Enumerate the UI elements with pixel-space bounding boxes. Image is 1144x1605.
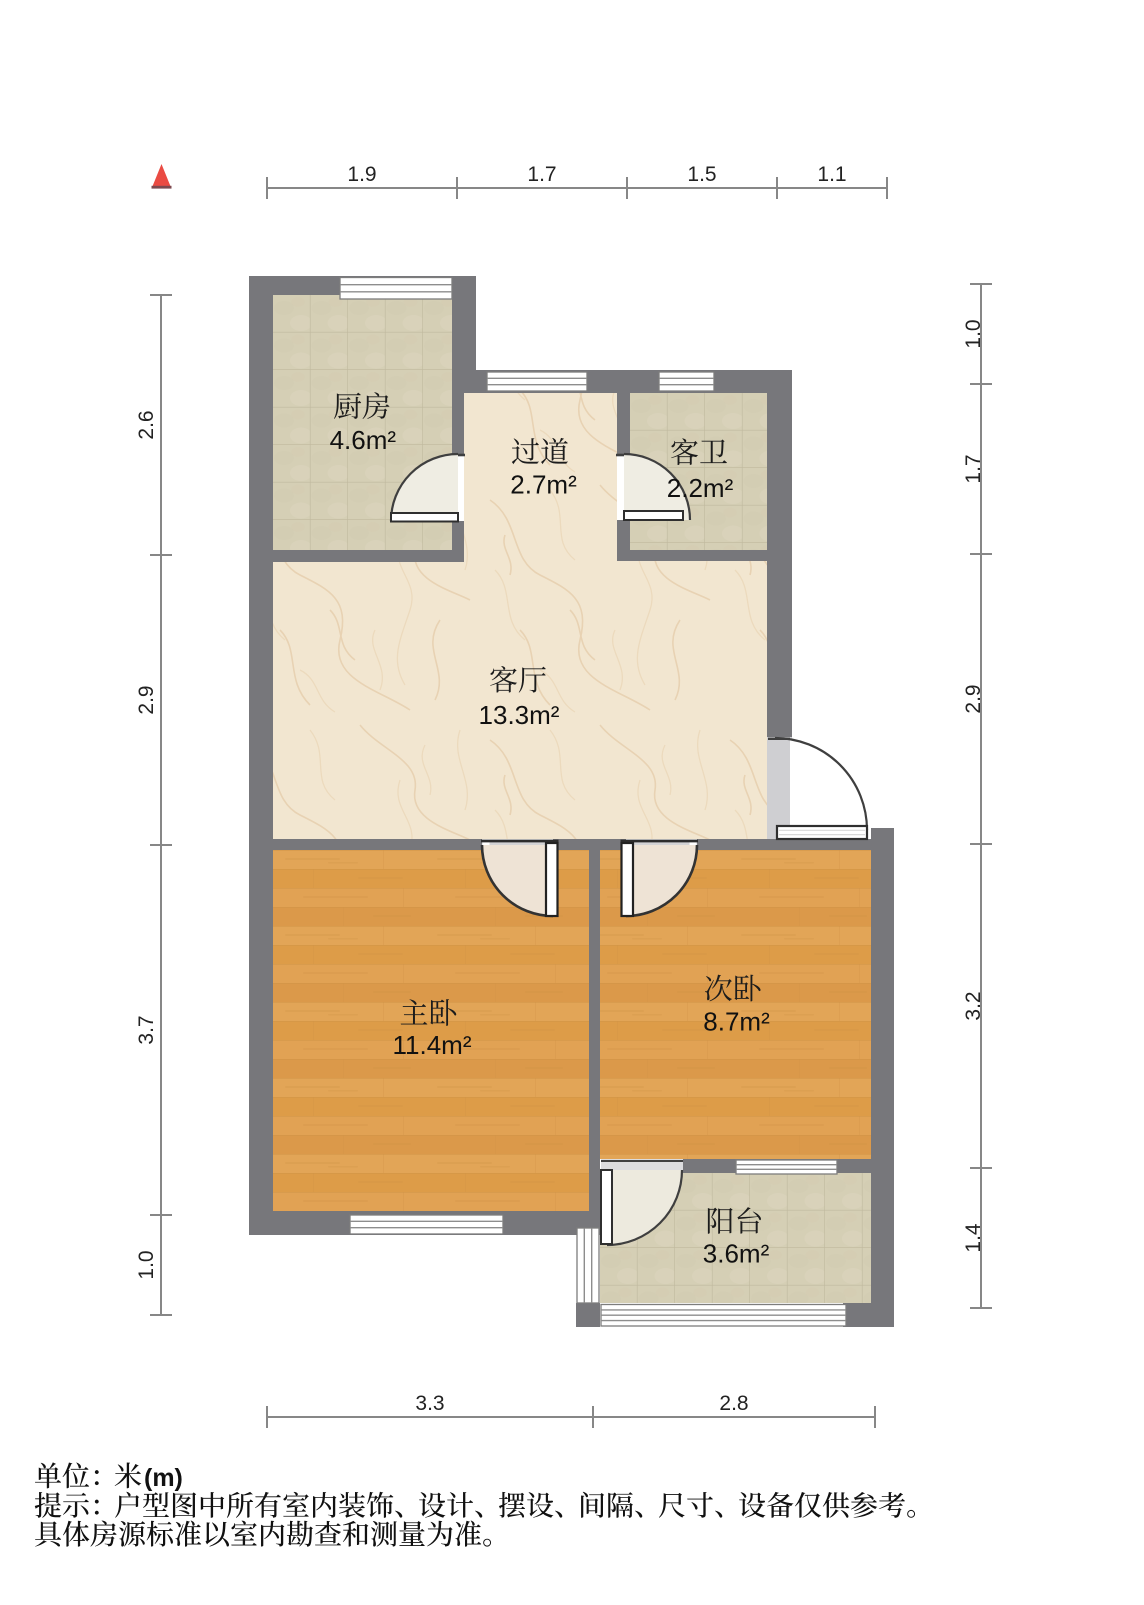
svg-text:1.1: 1.1 [817, 163, 846, 186]
svg-text:1.7: 1.7 [527, 163, 556, 186]
svg-text:1.0: 1.0 [135, 1250, 158, 1279]
svg-text:1.9: 1.9 [347, 163, 376, 186]
svg-text:2.2m²: 2.2m² [667, 473, 734, 503]
svg-text:2.9: 2.9 [962, 684, 985, 713]
svg-text:2.7m²: 2.7m² [510, 470, 577, 500]
svg-text:3.7: 3.7 [135, 1015, 158, 1044]
svg-text:13.3m²: 13.3m² [479, 700, 560, 730]
svg-text:11.4m²: 11.4m² [393, 1030, 472, 1060]
svg-text:2.9: 2.9 [135, 685, 158, 714]
svg-text:3.3: 3.3 [415, 1392, 444, 1415]
svg-text:3.6m²: 3.6m² [703, 1239, 770, 1269]
svg-text:1.4: 1.4 [962, 1223, 985, 1253]
svg-text:4.6m²: 4.6m² [330, 425, 397, 455]
svg-text:1.0: 1.0 [962, 319, 985, 348]
svg-text:1.5: 1.5 [687, 163, 716, 186]
svg-text:2.6: 2.6 [135, 410, 158, 439]
svg-text:8.7m²: 8.7m² [703, 1006, 770, 1036]
svg-text:3.2: 3.2 [962, 991, 985, 1020]
svg-text:(m): (m) [144, 1464, 183, 1492]
svg-text:2.8: 2.8 [719, 1392, 748, 1415]
svg-text:1.7: 1.7 [962, 454, 985, 483]
